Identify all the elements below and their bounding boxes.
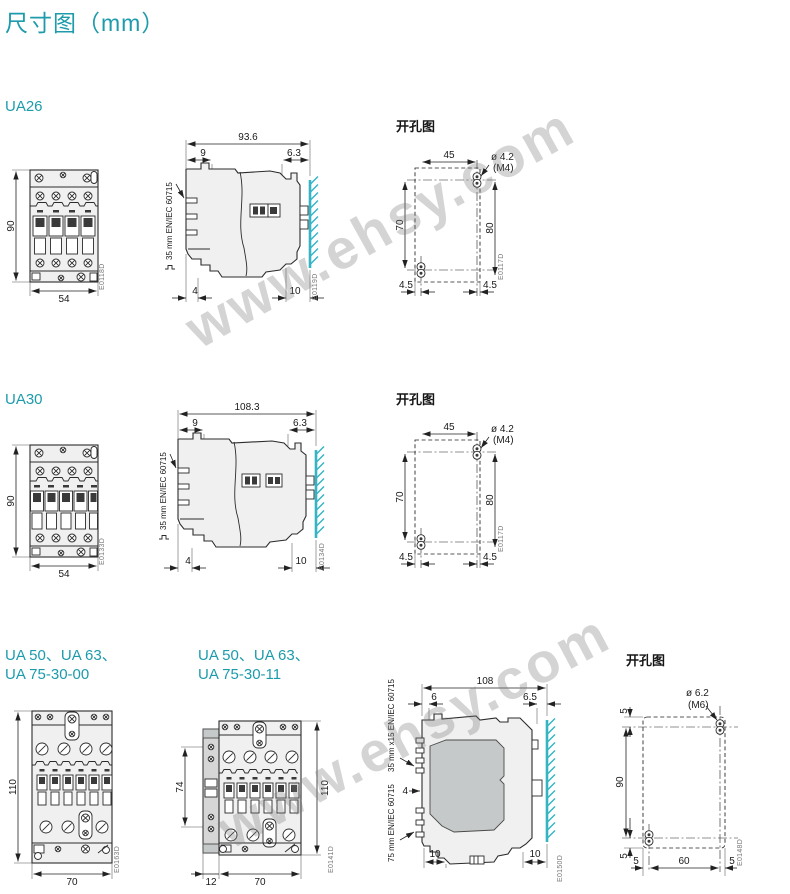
ua30-side-drawing: 108.3 9 6.3 35 mm EN/IEC 60715 4 10 E013… <box>154 398 349 593</box>
ua26-side-body <box>186 163 300 277</box>
din-rail-icon <box>159 536 169 540</box>
ua30-drill-title: 开孔图 <box>396 389 435 408</box>
ua30-drill-right-label: 80 <box>485 494 496 506</box>
ua30-drill-hole-bottom <box>417 535 425 550</box>
ua50-side-drawing: 108 6 6.5 35 mm x15 EN/IEC 60715 75 mm E… <box>380 642 572 894</box>
section-label-ua50-left: UA 50、UA 63、 UA 75-30-00 <box>5 646 117 684</box>
ua30-drill-hole-dia: ø 4.2 <box>491 424 514 435</box>
ua50-drill-hole-bottom <box>645 831 653 846</box>
ua50-side-code: E0150D <box>557 855 564 882</box>
ua50-right-line1: UA 50、UA 63、 <box>198 646 310 665</box>
ua50-drill-bleft-label: 5 <box>633 856 639 867</box>
ua50-side-rail-top-label: 35 mm x15 EN/IEC 60715 <box>387 679 396 772</box>
ua50-side-rail-bottom-label: 75 mm EN/IEC 60715 <box>387 784 396 862</box>
ua26-drill-hole-bottom <box>417 263 425 278</box>
ua30-drill-hole-thread: (M4) <box>493 435 514 446</box>
ua26-drill-br-label: 4.5 <box>483 280 497 291</box>
ua26-side-topleft-label: 9 <box>200 148 206 159</box>
ua26-drill-code: E0117D <box>498 253 505 280</box>
ua30-side-topright-label: 6.3 <box>293 418 307 429</box>
ua50-front11-width-label: 70 <box>254 877 266 888</box>
ua50-front11-aux-width-label: 12 <box>205 877 217 888</box>
ua26-side-rail-label: 35 mm EN/IEC 60715 <box>165 182 174 260</box>
ua30-side-rail-label: 35 mm EN/IEC 60715 <box>159 452 168 530</box>
ua26-drill-bl-label: 4.5 <box>399 280 413 291</box>
ua26-side-code: E0119D <box>312 273 319 300</box>
din-rail-icon <box>165 266 175 270</box>
ua30-front-drawing: 90 54 E0133D <box>2 435 147 587</box>
ua50-drill-hole-dia: ø 6.2 <box>686 688 709 699</box>
ua50-drill-hole-top <box>716 720 724 735</box>
ua30-side-mounting-wall <box>316 447 324 539</box>
section-label-ua30: UA30 <box>5 390 43 409</box>
ua50-drill-code: E0148D <box>737 839 744 866</box>
ua30-drill-br-label: 4.5 <box>483 552 497 563</box>
ua50-side-mid-label: 4 <box>402 786 408 797</box>
ua50-front11-drawing: 74 110 12 70 E0141D <box>153 703 350 894</box>
ua26-drill-right-label: 80 <box>485 222 496 234</box>
ua50-drill-bottom-label: 5 <box>619 853 630 859</box>
ua30-front-width-label: 54 <box>58 569 70 580</box>
ua50-left-line2: UA 75-30-00 <box>5 665 117 684</box>
ua50-front00-code: E0163D <box>114 846 121 873</box>
ua30-drill-top-label: 45 <box>443 422 455 433</box>
ua30-side-bottomright-label: 10 <box>295 556 307 567</box>
ua26-side-bottomleft-label: 4 <box>192 286 198 297</box>
ua30-drill-bl-label: 4.5 <box>399 552 413 563</box>
ua26-drill-hole-dia: ø 4.2 <box>491 152 514 163</box>
ua50-drill-hole-thread: (M6) <box>688 700 709 711</box>
ua30-side-total-label: 108.3 <box>234 402 259 413</box>
ua26-side-drawing: 93.6 9 6.3 35 mm EN/IEC 60715 4 10 E0119… <box>158 128 343 323</box>
ua26-front-drawing: 90 54 E0118D <box>2 160 147 312</box>
ua50-side-total-label: 108 <box>477 676 494 687</box>
ua50-drill-drawing: ø 6.2 (M6) 5 90 5 5 60 5 E0148D <box>598 666 790 894</box>
ua50-side-bottomright-label: 10 <box>529 849 541 860</box>
ua26-front-width-label: 54 <box>58 294 70 305</box>
ua30-side-code: E0134D <box>319 543 326 570</box>
ua30-side-bottomleft-label: 4 <box>185 556 191 567</box>
ua30-side-topleft-label: 9 <box>192 418 198 429</box>
ua30-side-body <box>178 433 306 547</box>
ua26-side-topright-label: 6.3 <box>287 148 301 159</box>
ua30-drill-drawing: 45 ø 4.2 (M4) 70 80 4.5 4.5 E0117D <box>393 410 611 582</box>
ua26-drill-drawing: 45 ø 4.2 (M4) 70 80 4.5 4.5 E0117D <box>393 138 611 310</box>
ua30-drill-left-label: 70 <box>395 491 406 503</box>
ua50-front00-width-label: 70 <box>66 877 78 888</box>
ua50-front11-aux-height-label: 74 <box>175 781 186 793</box>
ua50-front11-height-label: 110 <box>320 780 331 796</box>
ua50-right-line2: UA 75-30-11 <box>198 665 310 684</box>
ua26-side-bottomright-label: 10 <box>289 286 301 297</box>
ua26-drill-top-label: 45 <box>443 150 455 161</box>
ua30-front-height-label: 90 <box>6 495 17 507</box>
page-title: 尺寸图（mm） <box>5 4 165 38</box>
ua30-drill-hole-top <box>473 445 481 460</box>
ua50-drill-top-label: 5 <box>619 708 630 714</box>
ua50-drill-left-label: 90 <box>615 776 626 788</box>
section-label-ua26: UA26 <box>5 97 43 116</box>
ua26-drill-title: 开孔图 <box>396 116 435 135</box>
ua30-drill-code: E0117D <box>498 525 505 552</box>
ua50-front11-code: E0141D <box>328 846 335 873</box>
ua26-side-mounting-wall <box>310 177 318 269</box>
ua26-drill-hole-top <box>473 173 481 188</box>
ua50-front11-aux-block <box>203 729 219 853</box>
ua50-side-topleft-label: 6 <box>431 692 437 703</box>
ua50-side-bottomleft-label: 10 <box>429 849 441 860</box>
ua50-drill-bcenter-label: 60 <box>678 856 690 867</box>
ua26-front-height-label: 90 <box>6 220 17 232</box>
ua26-drill-hole-thread: (M4) <box>493 163 514 174</box>
ua50-left-line1: UA 50、UA 63、 <box>5 646 117 665</box>
section-label-ua50-right: UA 50、UA 63、 UA 75-30-11 <box>198 646 310 684</box>
ua50-drill-bright-label: 5 <box>729 856 735 867</box>
ua26-side-total-label: 93.6 <box>238 132 258 143</box>
ua50-front00-height-label: 110 <box>8 779 19 795</box>
ua50-side-topright-label: 6.5 <box>523 692 537 703</box>
ua50-front00-drawing: 110 70 E0163D <box>2 703 147 894</box>
ua26-front-code: E0118D <box>99 263 106 290</box>
catalog-page: { "page": { "title": "尺寸图（mm）" }, "water… <box>0 0 790 894</box>
ua26-drill-left-label: 70 <box>395 219 406 231</box>
ua30-front-code: E0133D <box>99 538 106 565</box>
ua50-side-inner-block <box>430 740 504 832</box>
ua50-side-mounting-wall <box>547 719 555 843</box>
